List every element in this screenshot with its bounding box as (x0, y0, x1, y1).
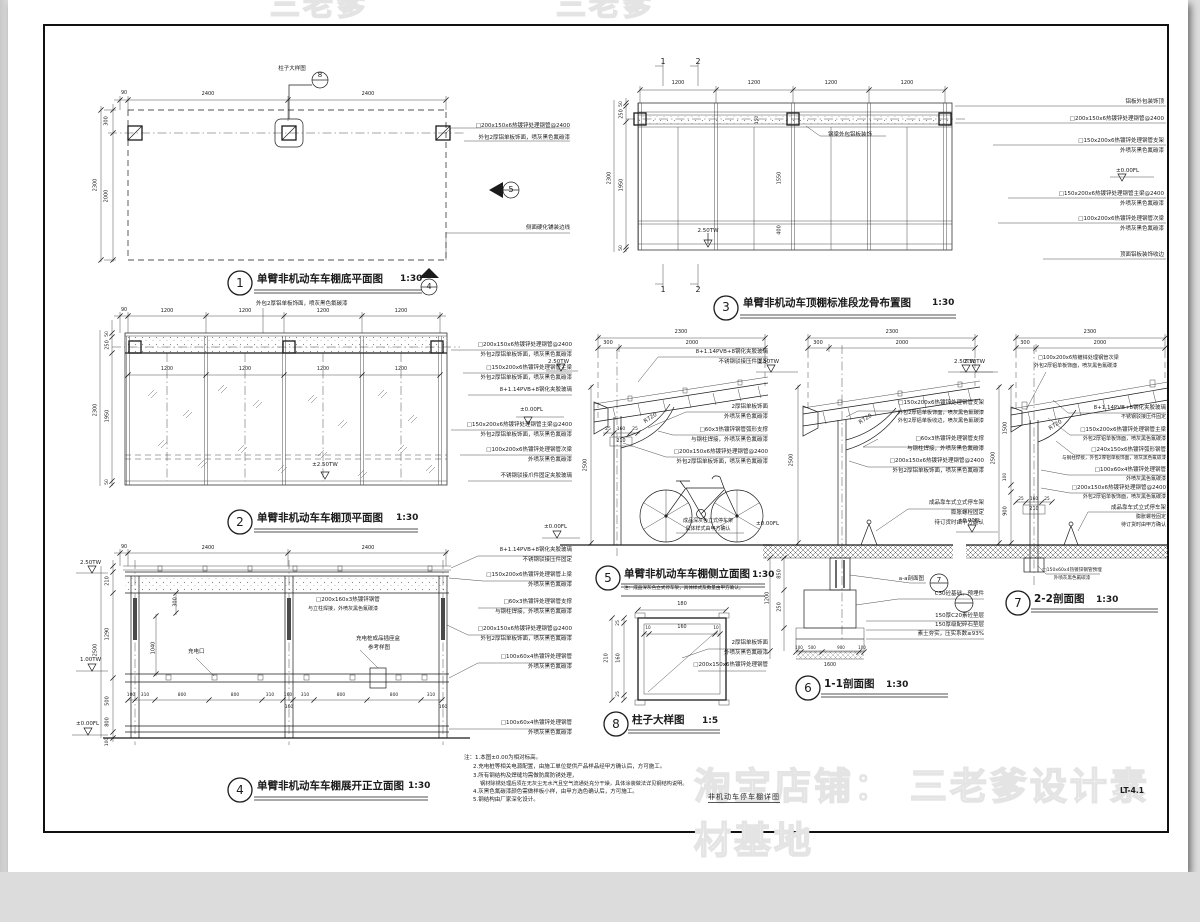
watermark-top-1: 三老爹 (270, 0, 369, 24)
annotation-text: 2000 (1094, 341, 1107, 346)
annotation-text: 1200 (825, 81, 838, 86)
annotation-text: 1:30 (400, 275, 422, 284)
annotation-text: 2300 (94, 179, 99, 192)
annotation-text: 不锈钢驳接爪件固定夹胶玻璃 (500, 474, 572, 480)
annotation-text: 50 (620, 101, 625, 107)
section-marker-5: 5 (508, 186, 513, 194)
annotation-text: 与钢柱焊接，外喷灰黑色氟碳漆 (691, 438, 768, 444)
annotation-text: 2500 (94, 644, 99, 657)
annotation-text: 300 (105, 116, 110, 126)
annotation-text: 外喷灰黑色氟碳漆 (1120, 149, 1164, 155)
annotation-text: 8+1.14PVB+8钢化夹胶玻璃 (500, 548, 572, 554)
annotation-text: 2.50TW (80, 561, 101, 567)
annotation-text: 2.50TW (548, 360, 569, 366)
annotation-text: 1200 (239, 309, 252, 314)
note-line: 注：1.本图±0.00为相对标高。 (464, 756, 541, 762)
annotation-text: 1200 (239, 368, 251, 373)
annotation-text: □60x3热镀锌处理钢管支撑 (504, 600, 572, 606)
annotation-text: 1:30 (1096, 596, 1118, 605)
annotation-text: 2500 (584, 459, 589, 472)
annotation-text: 90 (121, 546, 127, 551)
annotation-text: ±0.00FL (756, 522, 779, 528)
annotation-text: 外包2厚铝单板饰面，喷灰黑色氟碳漆 (898, 411, 984, 416)
annotation-text: □150x200x6热镀锌处理钢管主梁@2400 (467, 423, 572, 429)
annotation-text: □60x3热镀锌处理钢管支撑 (916, 437, 984, 443)
note-line: 2.充电桩等相关电源配置，由施工单位提供产品样品经甲方确认后，方可施工。 (473, 765, 665, 771)
annotation-text: 1 (660, 286, 665, 294)
annotation-text: 800 (106, 717, 111, 727)
annotation-text: 外喷灰黑色氟碳漆 (1120, 227, 1164, 233)
annotation-text: □240x150x6热镀锌弧形钢管 (1091, 448, 1166, 454)
annotation-text: 具体样式由甲方确认 (685, 527, 730, 532)
annotation-text: □200x150x6热镀锌处理钢管@2400 (478, 627, 572, 633)
drawing-title: 单臂非机动车顶棚标准段龙骨布置图 (743, 298, 911, 309)
annotation-text: 2300 (94, 404, 99, 417)
annotation-text: 100 (127, 694, 135, 698)
annotation-text: 1200 (317, 309, 330, 314)
drawing-title: 1-1剖面图 (824, 679, 874, 690)
annotation-text: R720 (858, 414, 873, 426)
annotation-text: 300 (813, 341, 823, 346)
annotation-text: □200x150x6热镀锌处理钢管@2400 (1072, 486, 1166, 492)
annotation-text: 1:30 (396, 514, 418, 523)
annotation-text: C30砼基础，预埋件 (935, 592, 984, 598)
title-number: 8 (612, 718, 620, 730)
annotation-text: 外包2厚铝单板饰面，喷灰黑色氟碳漆 (480, 637, 572, 643)
drawing-title: 单臂非机动车车棚顶平面图 (257, 513, 383, 524)
annotation-text: 100 (1004, 473, 1009, 482)
annotation-text: 150厚C20素砼垫层 (935, 614, 984, 620)
annotation-text: 2 (695, 286, 700, 294)
annotation-text: 1200 (161, 309, 174, 314)
annotation-text: 2300 (608, 172, 613, 185)
annotation-text: 外包2厚铝单板饰面，喷灰黑色氟碳漆 (480, 376, 572, 382)
annotation-text: 2300 (675, 330, 688, 335)
annotation-text: 1:30 (886, 681, 908, 690)
title-number: 5 (604, 572, 612, 584)
annotation-text: 8+1.14PVB+8钢化夹胶玻璃 (696, 350, 768, 356)
annotation-text: 1200 (766, 592, 771, 605)
annotation-text: 充电桩成品插座盒 (356, 637, 400, 643)
annotation-text: 1290 (106, 628, 111, 641)
annotation-text: 2.50TW (697, 229, 718, 235)
watermark: 淘宝店铺： 三老爹设计素材基地 (694, 756, 1188, 864)
annotation-text: □200x150x6热镀锌处理钢管@2400 (890, 459, 984, 465)
annotation-text: 膨胀螺栓固定 (951, 511, 984, 517)
annotation-text: 2.50TW (964, 360, 985, 366)
note-line: 钢材除锈处理后须在无灰尘无水汽且空气流通处充分干燥，具体涂装做法详见钢结构说明。 (480, 782, 688, 787)
annotation-text: 800 (337, 694, 345, 698)
annotation-text: 外包2厚铝单板饰面，喷灰黑色氟碳漆 (256, 302, 348, 308)
annotation-text: 2厚铝单板饰面 (732, 405, 769, 411)
annotation-text: 2000 (105, 190, 110, 203)
annotation-text: ±2.50TW (312, 463, 338, 469)
annotation-text: □100x60x4热镀锌处理钢管 (501, 655, 572, 661)
annotation-text: 1200 (317, 368, 329, 373)
drawing-sheet: 三老爹 三老爹 (8, 0, 1188, 872)
annotation-text: 150厚级配碎石垫层 (935, 623, 984, 629)
annotation-text: 1200 (395, 309, 408, 314)
annotation-text: 成品靠车式立式停车架 (929, 501, 984, 507)
annotation-text: 300 (174, 597, 179, 607)
annotation-text: □150x200x6热镀锌处理钢管支架 (1078, 139, 1164, 145)
annotation-text: □200x150x6热镀锌处理钢管@2400 (478, 343, 572, 349)
annotation-text: 外包2厚铝单板饰面，喷灰黑色氟碳漆 (1034, 364, 1117, 369)
annotation-text: 与钢柱焊接，外包2厚铝单板饰面，喷灰黑色氟碳漆 (1062, 457, 1166, 462)
annotation-text: □150x200x6热镀锌处理钢管主梁 (486, 366, 572, 372)
annotation-text: 外包2厚铝单板收边，喷灰黑色氟碳漆 (898, 419, 984, 424)
annotation-text: 160 (1030, 497, 1038, 501)
annotation-text: 25 (1044, 497, 1049, 501)
annotation-text: ±0.00FL (958, 519, 981, 525)
annotation-text: 参考样图 (368, 646, 390, 652)
annotation-text: 外喷灰黑色氟碳漆 (528, 665, 572, 671)
annotation-text: 800 (178, 694, 186, 698)
annotation-text: 90 (121, 92, 127, 97)
annotation-text: 外喷灰黑色氟碳漆 (1120, 202, 1164, 208)
title-number: 2 (236, 516, 244, 528)
annotation-text: 25 (632, 428, 638, 433)
annotation-text: □100x60x4热镀锌处理钢管 (501, 721, 572, 727)
annotation-text: □200x150x6热镀锌处理钢管@2400 (674, 450, 768, 456)
watermark-top-2: 三老爹 (556, 0, 655, 24)
annotation-text: 100 (795, 646, 803, 650)
title-number: 7 (1014, 597, 1022, 609)
annotation-text: □150x200x6热镀锌处理钢管上梁 (486, 573, 572, 579)
annotation-text: 1200 (748, 81, 761, 86)
drawing-title: 2-2剖面图 (1034, 594, 1084, 605)
annotation-text: 1200 (901, 81, 914, 86)
annotation-text: 1.00TW (80, 658, 101, 664)
annotation-text: 310 (266, 694, 274, 698)
annotation-text: 100 (106, 738, 111, 747)
annotation-text: 2500 (790, 454, 795, 467)
annotation-text: 2300 (886, 330, 899, 335)
annotation-text: 310 (301, 694, 309, 698)
annotation-text: 160 (284, 694, 292, 698)
annotation-text: 外包2厚铝单板饰面，喷灰黑色氟碳漆 (480, 353, 572, 359)
annotation-text: 250 (106, 340, 111, 350)
note-line: 3.所有钢结构及焊缝均需做防腐防锈处理， (473, 774, 577, 780)
annotation-text: 柱子大样图 (278, 67, 306, 73)
drawing-title: 单臂非机动车车棚展开正立面图 (257, 781, 404, 792)
annotation-text: 充电口 (188, 650, 205, 656)
annotation-text: 1600 (824, 664, 836, 669)
annotation-text: 90 (121, 309, 127, 314)
annotation-text: 外喷灰黑色氟碳漆 (1126, 477, 1166, 482)
section-marker-4: 4 (426, 283, 431, 291)
annotation-text: 150 (756, 116, 761, 125)
annotation-text: 注：成品深灰色立式停车架，具体样式及数量由甲方确认。 (624, 587, 743, 592)
drawing-1-base-plan (98, 72, 570, 295)
annotation-text: 2400 (362, 546, 375, 551)
annotation-text: 300 (1020, 341, 1030, 346)
annotation-text: □150x60x4热镀锌钢管预埋 (1042, 569, 1101, 574)
annotation-text: 400 (778, 225, 783, 235)
annotation-text: 10 (645, 626, 650, 630)
annotation-text: 1550 (778, 172, 783, 185)
annotation-text: 素土夯实，压实系数≥93% (918, 632, 984, 638)
annotation-text: 成品深灰色立式停车架 (683, 519, 733, 524)
annotation-text: 50 (106, 479, 111, 485)
annotation-text: 膨胀螺栓固定 (1136, 515, 1166, 520)
annotation-text: □200x160x3热镀锌钢管 (316, 598, 380, 604)
annotation-text: ±0.00FL (76, 722, 99, 728)
annotation-text: 与立柱焊接，外喷灰黑色氟碳漆 (308, 607, 378, 612)
annotation-text: 160 (677, 626, 686, 631)
annotation-text: 1200 (395, 368, 407, 373)
annotation-text: 160 (617, 653, 622, 663)
annotation-text: 2.50TW (758, 360, 779, 366)
annotation-text: □200x150x6热镀锌处理钢管@2400 (476, 124, 570, 130)
annotation-text: 外喷灰黑色氟碳漆 (724, 651, 768, 657)
annotation-text: 外喷灰黑色氟碳漆 (528, 731, 572, 737)
annotation-text: 侧面硬化铺装边线 (526, 226, 570, 232)
annotation-text: 外包2厚铝单板饰面，喷灰黑色氟碳漆 (892, 469, 984, 475)
annotation-text: 50 (620, 245, 625, 251)
annotation-text: 160 (439, 706, 448, 711)
drawing-title: 单臂非机动车车棚侧立面图 (624, 569, 750, 580)
annotation-text: 钢梁外包铝板装饰 (828, 133, 872, 139)
annotation-text: □100x200x6热镀锌处理钢管次梁 (1038, 356, 1119, 361)
annotation-text: 2400 (202, 92, 215, 97)
annotation-text: 不锈钢驳接压件固定 (522, 558, 572, 564)
annotation-text: □150x200x6热镀锌处理钢管主梁@2400 (1059, 192, 1164, 198)
annotation-text: 外喷灰黑色氟碳漆 (528, 583, 572, 589)
annotation-text: ±0.00FL (544, 525, 567, 531)
annotation-text: 160 (285, 706, 294, 711)
annotation-text: 1:5 (702, 717, 718, 726)
annotation-text: 2厚铝单板饰面 (732, 641, 769, 647)
annotation-text: 180 (677, 602, 687, 607)
annotation-text: 210 (605, 653, 610, 663)
annotation-text: □100x200x6热镀锌处理钢管次梁 (486, 448, 572, 454)
annotation-text: 外喷灰黑色氟碳漆 (528, 458, 572, 464)
annotation-text: 8+1.14PVB+8钢化夹胶玻璃 (500, 388, 572, 394)
annotation-text: 800 (231, 694, 239, 698)
annotation-text: 500 (106, 696, 111, 706)
annotation-text: 1:30 (752, 571, 774, 580)
viewer-background (0, 872, 1200, 922)
annotation-text: □200x150x6热镀锌处理钢管@2400 (1070, 117, 1164, 123)
title-number: 1 (236, 277, 244, 289)
annotation-text: 与钢柱焊接，外喷灰黑色氟碳漆 (495, 610, 572, 616)
annotation-text: 50 (106, 331, 111, 337)
annotation-text: 2000 (896, 341, 909, 346)
sheet-number: LT-4.1 (1120, 786, 1144, 795)
annotation-text: 1950 (620, 179, 625, 192)
annotation-text: 300 (603, 341, 613, 346)
annotation-text: 25 (617, 620, 622, 626)
annotation-text: 250 (620, 109, 625, 119)
annotation-text: □60x3热镀锌钢管弧形支撑 (700, 428, 768, 434)
annotation-text: 2 (695, 58, 700, 66)
annotation-text: 1950 (106, 410, 111, 423)
drawing-title: 柱子大样图 (632, 715, 685, 726)
annotation-text: 100 (858, 646, 866, 650)
annotation-text: 与钢柱焊接，外喷灰黑色氟碳漆 (907, 447, 984, 453)
annotation-text: 2400 (362, 92, 375, 97)
annotation-text: 2300 (1084, 330, 1097, 335)
annotation-text: □100x60x4热镀锌处理钢管 (1095, 468, 1166, 474)
annotation-text: ±0.00FL (520, 408, 543, 414)
annotation-text: a-a剖面图 (899, 577, 924, 583)
annotation-text: 外包2厚铝单板饰面，喷灰黑色氟碳漆 (1083, 437, 1166, 442)
annotation-text: 900 (837, 646, 845, 650)
annotation-text: 25 (617, 691, 622, 697)
annotation-text: 外包2厚铝单板饰面，喷灰黑色氟碳漆 (478, 136, 570, 142)
cad-linework (8, 0, 1188, 872)
bicycle-icon (640, 476, 763, 542)
annotation-text: □100x200x6热镀锌处理钢管次梁 (1078, 217, 1164, 223)
annotation-text: 1 (660, 58, 665, 66)
annotation-text: 不锈钢驳接压件固定 (1121, 415, 1166, 420)
annotation-text: 500 (808, 646, 816, 650)
note-line: 4.灰黑色氟碳漆颜色需做样板小样，由甲方选色确认后，方可施工。 (473, 790, 638, 796)
annotation-text: 850 (778, 569, 783, 579)
annotation-text: 210 (106, 576, 111, 586)
annotation-text: ±0.00FL (1116, 169, 1139, 175)
annotation-text: 8+1.14PVB+8钢化夹胶玻璃 (1094, 406, 1166, 412)
annotation-text: 2400 (202, 546, 215, 551)
ref-bubble: 7 (937, 577, 941, 584)
sheet-footer-title: 非机动车停车棚详图 (708, 792, 780, 803)
annotation-text: R720 (1048, 420, 1063, 432)
annotation-text: 210 (1029, 508, 1038, 513)
annotation-text: 外包2厚铝单板饰面，喷灰黑色氟碳漆 (480, 433, 572, 439)
cad-viewer: { "page": { "watermark": "淘宝店铺： 三老爹设计素材基… (0, 0, 1200, 922)
annotation-text: □200x150x6热镀锌处理钢管 (693, 663, 768, 669)
drawing-title: 单臂非机动车车棚底平面图 (257, 274, 383, 285)
annotation-text: 外喷灰黑色氟碳漆 (724, 415, 768, 421)
annotation-text: 待订货时由甲方确认 (1121, 523, 1166, 528)
ref-bubble-8: 8 (318, 72, 322, 79)
annotation-text: 1200 (672, 81, 685, 86)
annotation-text: 900 (1004, 506, 1009, 516)
annotation-text: 成品靠车式立式停车架 (1111, 506, 1166, 512)
note-line: 5.钢结构由厂家深化设计。 (473, 798, 539, 804)
annotation-text: 顶面铝板装饰收边 (1120, 253, 1164, 259)
annotation-text: 210 (616, 440, 625, 445)
annotation-text: 310 (141, 694, 149, 698)
annotation-text: 铝板外包装饰顶 (1125, 100, 1164, 106)
annotation-text: 1:30 (408, 782, 430, 791)
annotation-text: 1200 (161, 368, 173, 373)
annotation-text: R720 (643, 413, 658, 425)
annotation-text: 2000 (686, 341, 699, 346)
annotation-text: 250 (778, 602, 783, 612)
annotation-text: 310 (427, 694, 435, 698)
annotation-text: 25 (1018, 497, 1023, 501)
annotation-text: 外包2厚铝单板饰面，喷灰黑色氟碳漆 (1083, 495, 1166, 500)
annotation-text: 25 (605, 428, 611, 433)
annotation-text: □150x200x6热镀锌处理钢管主梁 (1080, 428, 1166, 434)
annotation-text: 外喷灰黑色氟碳漆 (1054, 577, 1091, 582)
title-number: 3 (722, 301, 730, 313)
annotation-text: 1:30 (932, 299, 954, 308)
annotation-text: 160 (617, 428, 626, 433)
annotation-text: 1500 (1004, 422, 1009, 435)
title-number: 4 (236, 784, 244, 796)
annotation-text: 10 (713, 626, 718, 630)
annotation-text: 1040 (152, 642, 157, 655)
annotation-text: □150x200x6热镀锌处理钢管支架 (898, 401, 984, 407)
annotation-text: 2500 (992, 452, 997, 465)
annotation-text: 外包2厚铝单板饰面，喷灰黑色氟碳漆 (676, 460, 768, 466)
drawing-6-section-1-1 (756, 334, 993, 700)
annotation-text: 800 (390, 694, 398, 698)
title-number: 6 (804, 682, 812, 694)
